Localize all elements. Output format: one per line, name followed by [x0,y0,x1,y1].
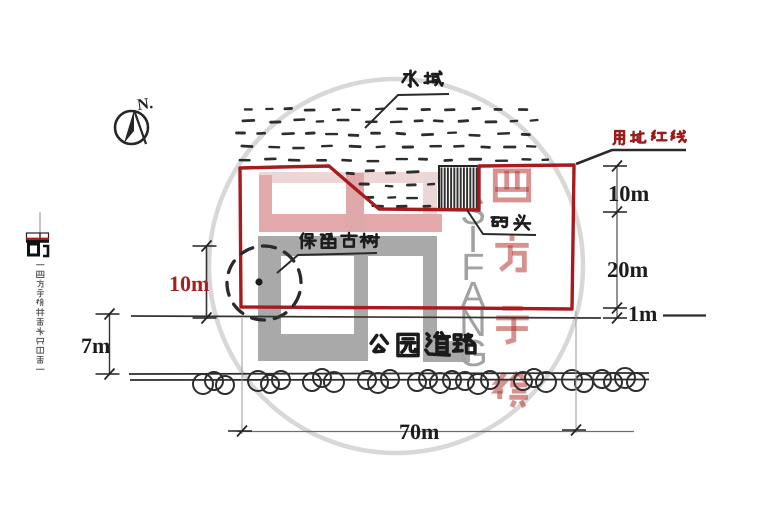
svg-text:10m: 10m [169,271,209,296]
svg-text:20m: 20m [607,257,649,282]
svg-text:7m: 7m [81,333,110,358]
svg-text:N.: N. [136,95,154,114]
svg-text:1m: 1m [628,301,657,326]
svg-text:70m: 70m [399,419,439,444]
svg-text:10m: 10m [608,181,650,206]
